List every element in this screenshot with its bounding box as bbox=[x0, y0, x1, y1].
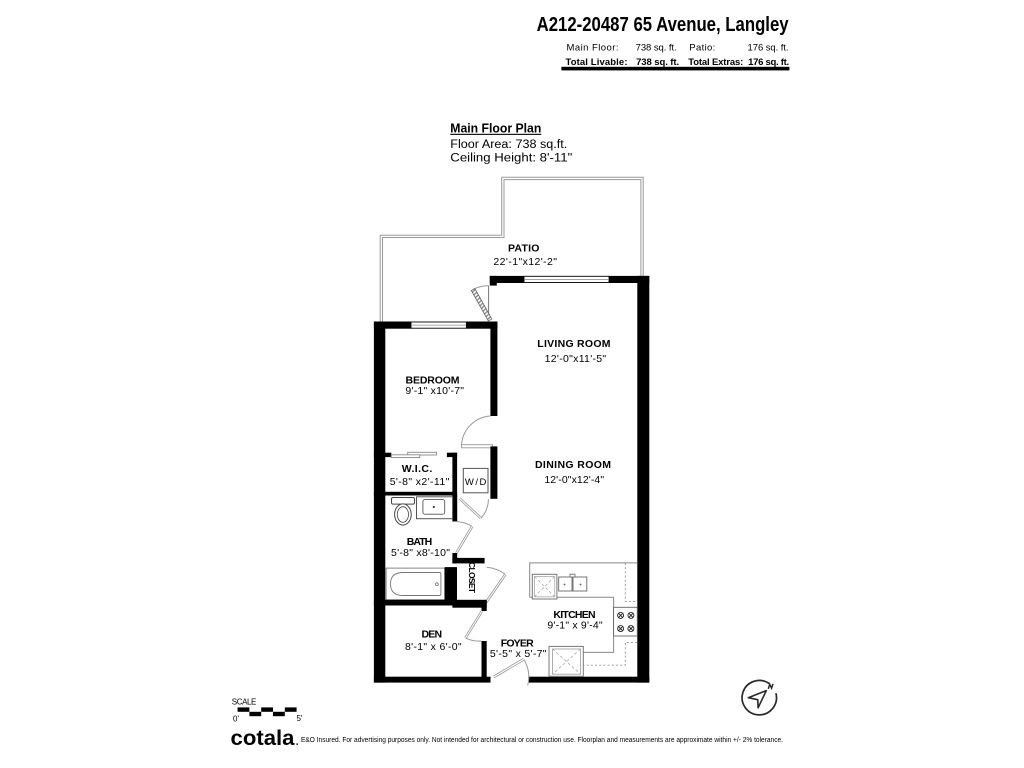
svg-text:5'-8" x2'-11": 5'-8" x2'-11" bbox=[390, 476, 450, 488]
svg-text:Total Extras:: Total Extras: bbox=[688, 57, 743, 68]
svg-text:5': 5' bbox=[297, 714, 303, 723]
svg-text:LIVING ROOM: LIVING ROOM bbox=[537, 338, 610, 350]
svg-text:Ceiling Height: 8'-11": Ceiling Height: 8'-11" bbox=[450, 152, 572, 164]
svg-text:5'-5" x 5'-7": 5'-5" x 5'-7" bbox=[490, 648, 547, 660]
svg-text:738 sq. ft.: 738 sq. ft. bbox=[636, 57, 679, 68]
svg-text:9'-1" x 9'-4": 9'-1" x 9'-4" bbox=[547, 620, 603, 632]
svg-text:CLOSET: CLOSET bbox=[467, 562, 477, 594]
svg-text:176 sq. ft.: 176 sq. ft. bbox=[748, 43, 789, 54]
svg-text:0': 0' bbox=[233, 714, 239, 723]
svg-text:Total Livable:: Total Livable: bbox=[566, 57, 628, 68]
svg-text:W/D: W/D bbox=[465, 477, 487, 488]
svg-text:8'-1" x 6'-0": 8'-1" x 6'-0" bbox=[405, 641, 462, 653]
svg-text:9'-1" x10'-7": 9'-1" x10'-7" bbox=[405, 385, 464, 397]
svg-text:176 sq. ft.: 176 sq. ft. bbox=[748, 57, 789, 68]
svg-text:DEN: DEN bbox=[422, 629, 443, 641]
svg-text:Main Floor:: Main Floor: bbox=[567, 43, 619, 54]
svg-text:DINING ROOM: DINING ROOM bbox=[535, 459, 611, 471]
svg-text:12'-0"x12'-4": 12'-0"x12'-4" bbox=[544, 474, 604, 486]
svg-text:Main Floor Plan: Main Floor Plan bbox=[450, 121, 541, 136]
svg-text:Patio:: Patio: bbox=[689, 43, 715, 54]
svg-text:22'-1"x12'-2": 22'-1"x12'-2" bbox=[493, 256, 557, 268]
svg-text:738 sq. ft.: 738 sq. ft. bbox=[636, 43, 677, 54]
svg-text:PATIO: PATIO bbox=[508, 243, 540, 255]
svg-text:SCALE: SCALE bbox=[232, 698, 257, 707]
svg-text:cotala: cotala bbox=[231, 727, 295, 750]
svg-text:Floor Area: 738 sq.ft.: Floor Area: 738 sq.ft. bbox=[450, 139, 567, 151]
svg-text:5'-8" x8'-10": 5'-8" x8'-10" bbox=[391, 547, 450, 559]
svg-text:W.I.C.: W.I.C. bbox=[402, 463, 433, 475]
svg-text:A212-20487 65 Avenue, Langley: A212-20487 65 Avenue, Langley bbox=[537, 14, 790, 36]
svg-text:12'-0"x11'-5": 12'-0"x11'-5" bbox=[545, 353, 607, 365]
svg-text:E&O Insured. For advertising p: E&O Insured. For advertising purposes on… bbox=[301, 737, 783, 744]
